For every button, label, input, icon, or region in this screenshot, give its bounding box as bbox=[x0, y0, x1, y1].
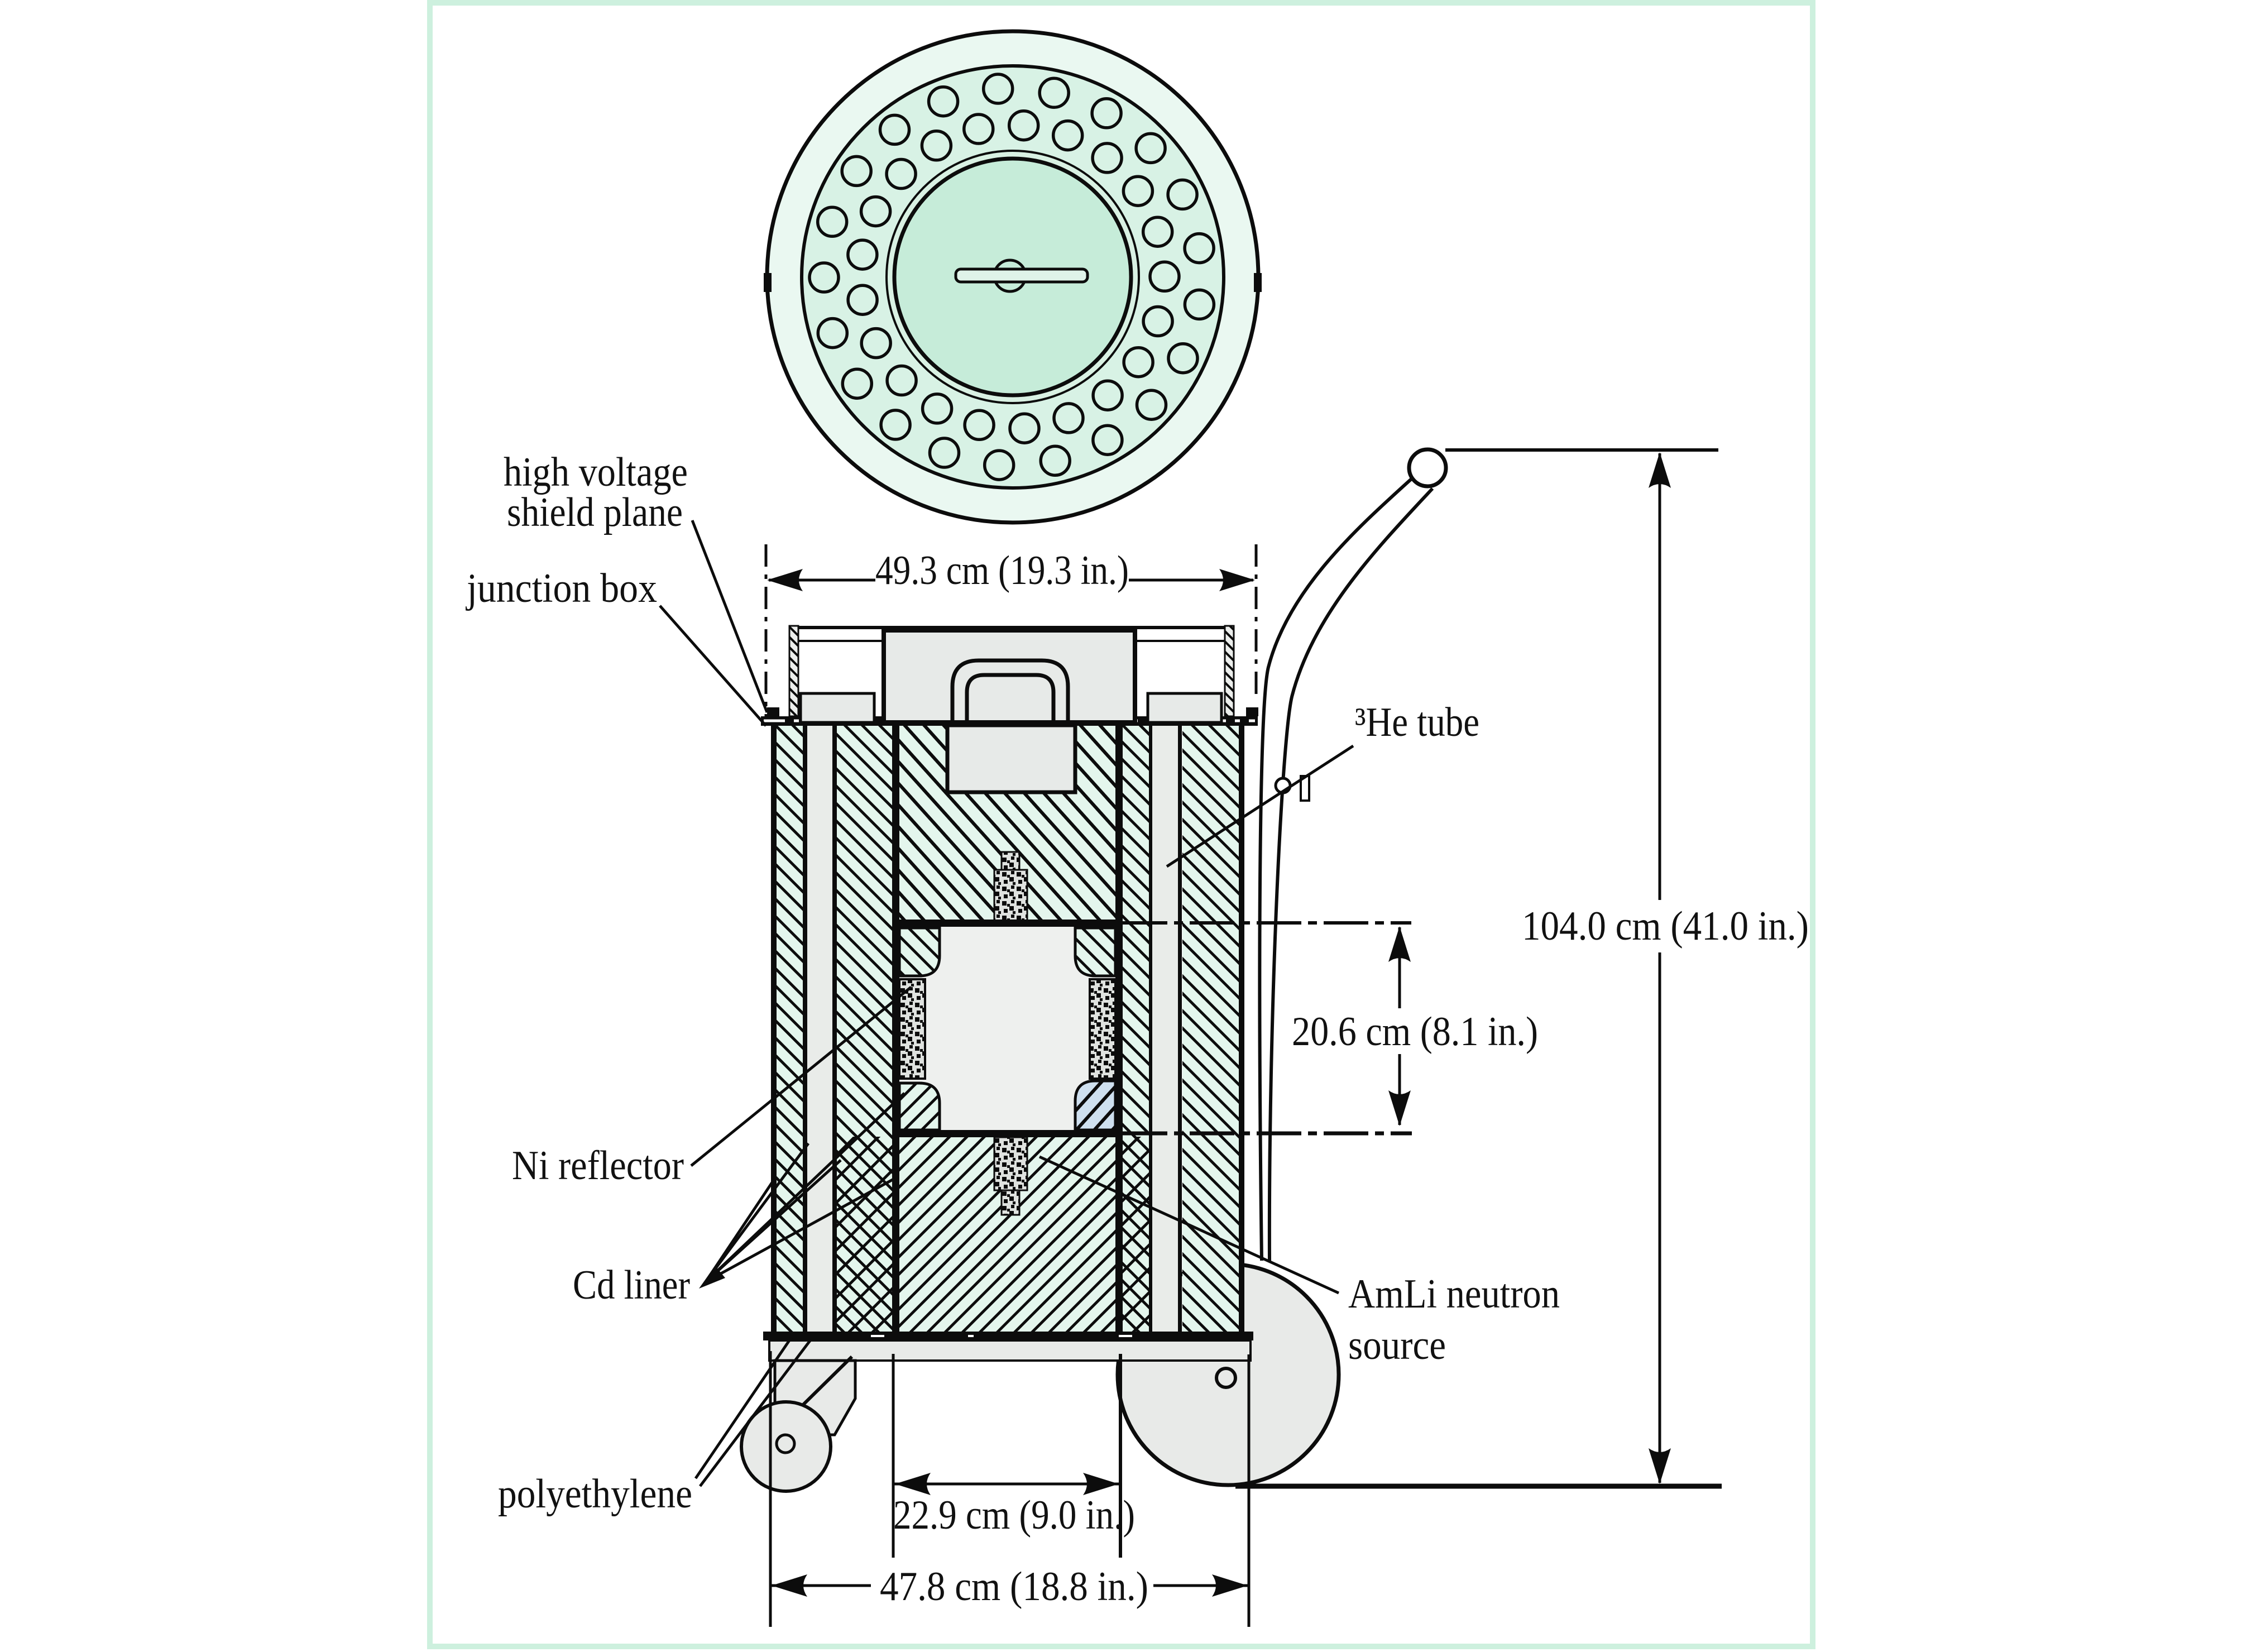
svg-text:³He tube: ³He tube bbox=[1355, 700, 1479, 745]
svg-text:junction box: junction box bbox=[465, 566, 657, 611]
svg-text:polyethylene: polyethylene bbox=[498, 1471, 692, 1517]
svg-text:Ni reflector: Ni reflector bbox=[512, 1143, 684, 1189]
svg-text:22.9 cm (9.0 in.): 22.9 cm (9.0 in.) bbox=[893, 1492, 1135, 1538]
svg-text:AmLi neutron: AmLi neutron bbox=[1348, 1271, 1560, 1317]
svg-text:49.3 cm (19.3 in.): 49.3 cm (19.3 in.) bbox=[875, 548, 1129, 593]
svg-text:shield plane: shield plane bbox=[507, 490, 683, 535]
svg-text:Cd liner: Cd liner bbox=[573, 1262, 690, 1308]
svg-text:source: source bbox=[1348, 1323, 1446, 1368]
svg-text:high voltage: high voltage bbox=[504, 449, 688, 495]
svg-text:47.8 cm (18.8 in.): 47.8 cm (18.8 in.) bbox=[880, 1564, 1148, 1610]
svg-text:104.0 cm (41.0 in.): 104.0 cm (41.0 in.) bbox=[1522, 903, 1809, 949]
svg-text:20.6 cm (8.1 in.): 20.6 cm (8.1 in.) bbox=[1292, 1009, 1538, 1055]
